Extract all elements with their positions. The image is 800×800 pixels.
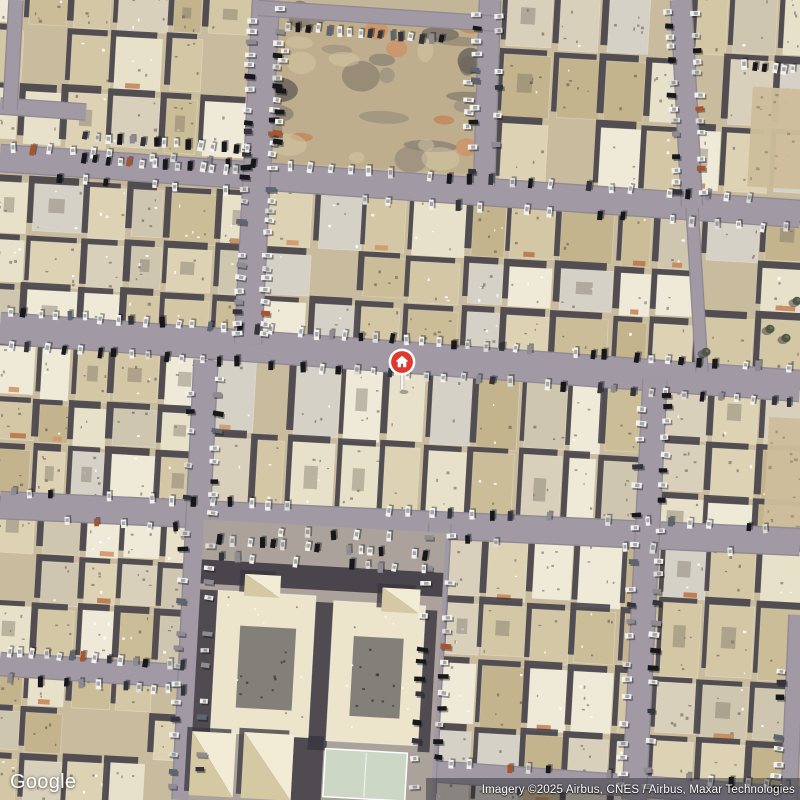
map-marker[interactable] <box>384 348 420 396</box>
map-viewport[interactable]: Google Imagery ©2025 Airbus, CNES / Airb… <box>0 0 800 800</box>
marker-ground-shadow <box>400 390 409 394</box>
satellite-imagery[interactable] <box>0 0 800 800</box>
marker-stem <box>401 373 404 390</box>
google-logo[interactable]: Google <box>10 771 76 794</box>
map-attribution: Imagery ©2025 Airbus, CNES / Airbus, Max… <box>482 784 795 796</box>
